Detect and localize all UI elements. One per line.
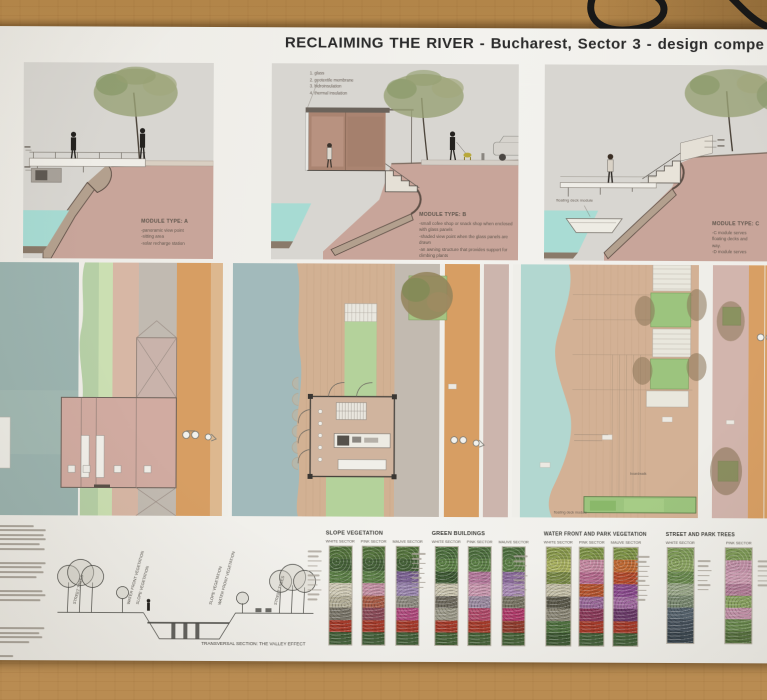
plant-collage-strip xyxy=(724,547,752,644)
plan-tree xyxy=(401,272,453,320)
section-figure xyxy=(147,599,151,611)
micro-labels xyxy=(307,547,323,603)
person-figure xyxy=(608,154,614,183)
plant-collage-strip xyxy=(545,546,571,646)
site-plan-module-a xyxy=(0,262,229,516)
plan-b-drawing xyxy=(232,263,509,517)
transversal-section: STREET TREES WATER FRONT VEGETATION SLOP… xyxy=(51,524,320,649)
section-module-c: floating deck module MODULE TYPE: C -C m… xyxy=(544,64,767,261)
plan-waterfront-drawing: boardwalk floating deck module xyxy=(512,264,767,518)
poster-title: RECLAIMING THE RIVER - Bucharest, Sector… xyxy=(285,34,764,53)
plant-collage-strip xyxy=(361,546,385,646)
module-a-label: MODULE TYPE: A xyxy=(141,219,209,225)
micro-labels xyxy=(412,550,428,592)
person-walking-dog xyxy=(450,131,472,160)
transversal-drawing: STREET TREES WATER FRONT VEGETATION SLOP… xyxy=(51,524,320,649)
site-plan-waterfront: boardwalk floating deck module xyxy=(512,264,767,518)
section-module-b: 1. glass 2. geotextile membrane 3. hidro… xyxy=(271,63,519,260)
module-b-label: MODULE TYPE: B xyxy=(419,212,515,218)
micro-labels xyxy=(635,553,651,604)
plant-collage-strip xyxy=(467,546,491,646)
transversal-caption: TRANSVERSAL SECTION: THE VALLEY EFFECT xyxy=(201,641,305,646)
module-b-floorplan xyxy=(298,382,397,479)
floating-deck-plan-label: floating deck module xyxy=(554,510,587,514)
boardwalk-label: boardwalk xyxy=(630,472,647,476)
project-description-textblock xyxy=(0,522,46,660)
floating-deck-label: floating deck module xyxy=(556,197,593,202)
micro-labels xyxy=(514,552,530,598)
competition-poster: RECLAIMING THE RIVER - Bucharest, Sector… xyxy=(0,26,767,663)
person-figure xyxy=(71,132,76,159)
veg-group-title: SLOPE VEGETATION xyxy=(326,530,423,536)
module-c-description: MODULE TYPE: C -C module serves floating… xyxy=(712,221,767,256)
veg-group-waterfront: WATER FRONT AND PARK VEGETATION WHITE SE… xyxy=(543,531,646,646)
construction-legend: 1. glass 2. geotextile membrane 3. hidro… xyxy=(310,70,354,97)
photo-of-competition-board: RECLAIMING THE RIVER - Bucharest, Sector… xyxy=(0,0,767,700)
module-b-description: MODULE TYPE: B -small cofee shop or snac… xyxy=(419,212,515,260)
section-module-a: MODULE TYPE: A -panoramic view point -si… xyxy=(23,62,214,259)
veg-group-title: GREEN BUILDINGS xyxy=(432,531,529,537)
module-c-label: MODULE TYPE: C xyxy=(712,221,767,227)
person-figure xyxy=(140,128,145,159)
car xyxy=(493,136,518,161)
veg-group-title: WATER FRONT AND PARK VEGETATION xyxy=(544,531,647,537)
plant-collage-strip xyxy=(434,546,458,646)
street-furniture xyxy=(481,153,484,160)
plan-a-drawing xyxy=(0,262,229,516)
plant-collage-strip xyxy=(328,545,352,645)
veg-group-title: STREET AND PARK TREES xyxy=(666,532,753,538)
micro-labels xyxy=(698,557,714,594)
micro-labels xyxy=(758,557,767,589)
veg-group-slope: SLOPE VEGETATION WHITE SECTOR PINK SECTO… xyxy=(325,530,423,645)
module-a-description: MODULE TYPE: A -panoramic view point -si… xyxy=(141,219,209,247)
waterside-green-strip xyxy=(584,497,696,513)
plant-collage-strip xyxy=(578,547,604,647)
site-plan-module-b xyxy=(232,263,509,517)
plant-collage-strip xyxy=(666,547,694,644)
